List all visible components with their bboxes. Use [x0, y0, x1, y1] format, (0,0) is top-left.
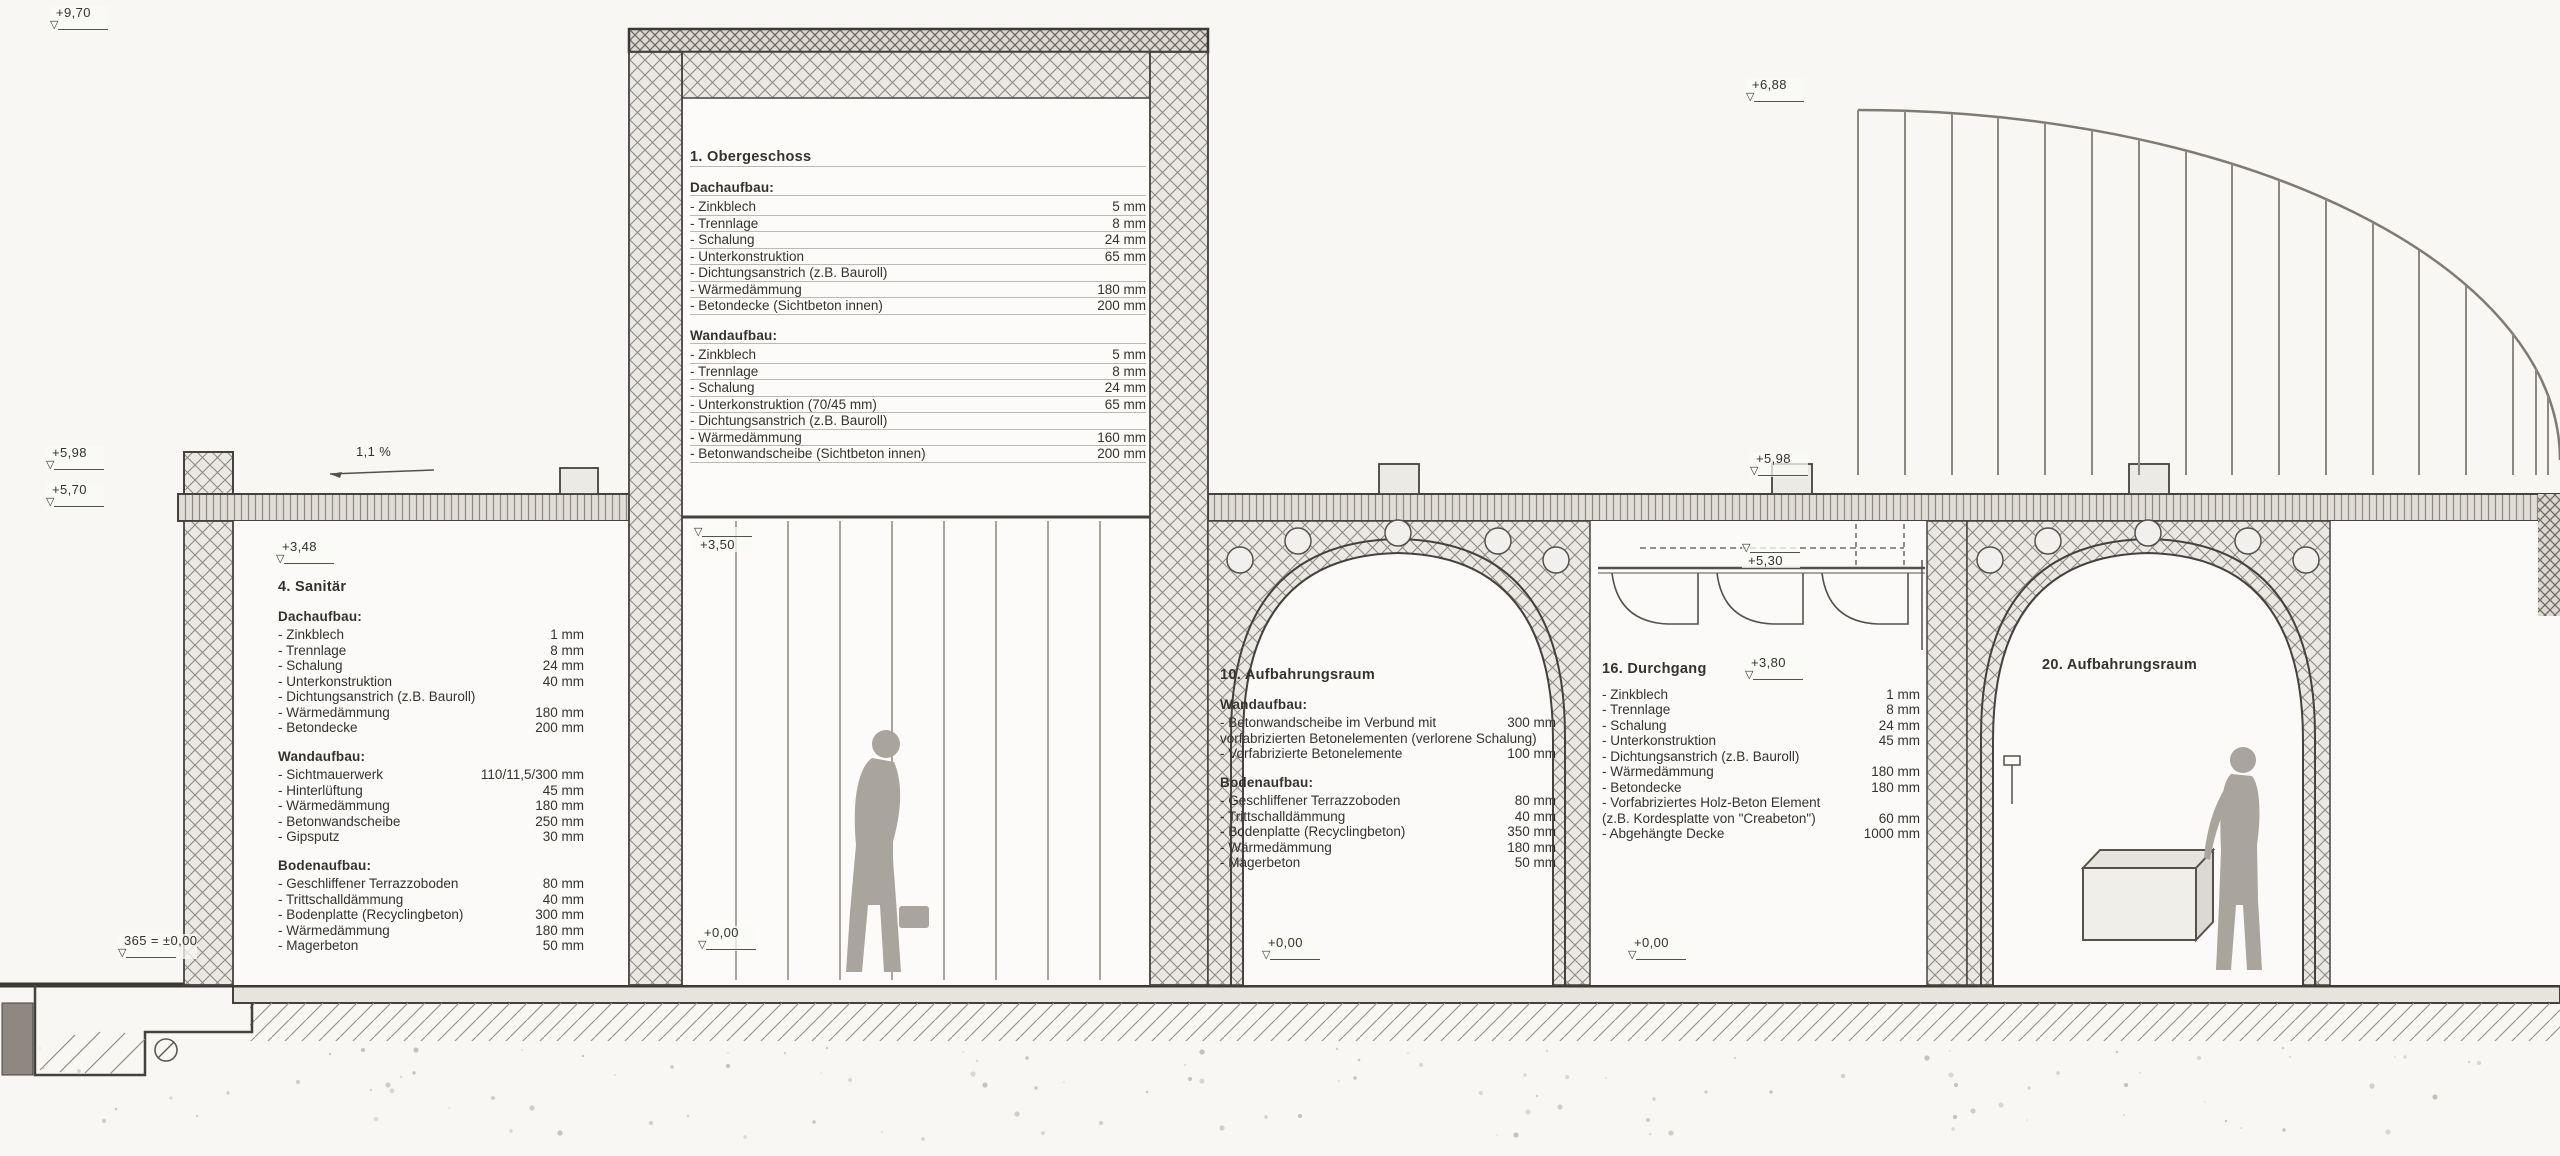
spec-row: - Dichtungsanstrich (z.B. Bauroll)	[1602, 749, 1920, 765]
spec-block-room4: 4. SanitärDachaufbau:- Zinkblech1 mm- Tr…	[278, 580, 584, 954]
spec-value: 24 mm	[1105, 380, 1146, 396]
spec-row: - Trittschalldämmung40 mm	[278, 892, 584, 908]
spec-value: 24 mm	[1879, 718, 1920, 734]
catafalque	[2083, 850, 2213, 940]
elevation-marker-top-left: +9,70 ▽	[50, 6, 108, 31]
spec-label: - Vorfabriziertes Holz-Beton Element	[1602, 795, 1830, 811]
spec-value: 5 mm	[1112, 347, 1146, 363]
spec-value: 50 mm	[1515, 855, 1556, 871]
spec-value: 40 mm	[1515, 809, 1556, 825]
spec-value: 8 mm	[1112, 216, 1146, 232]
spec-value: 110/11,5/300 mm	[481, 767, 584, 783]
elevation-marker-room16-lintel: +3,80 ▽	[1745, 656, 1803, 681]
spec-label: - Wärmedämmung	[278, 798, 400, 814]
spec-value: 80 mm	[543, 876, 584, 892]
spec-value: 65 mm	[1105, 397, 1146, 413]
spec-row: - Trennlage8 mm	[278, 643, 584, 659]
spec-label: (z.B. Kordesplatte von "Creabeton")	[1602, 811, 1826, 827]
spec-label: - Wärmedämmung	[278, 923, 400, 939]
spec-row: - Dichtungsanstrich (z.B. Bauroll)	[690, 413, 1146, 430]
spec-value: 65 mm	[1105, 249, 1146, 265]
elevation-marker-room10-floor: +0,00 ▽	[1262, 936, 1320, 961]
tower-ceiling-band	[682, 52, 1150, 98]
spec-title: 4. Sanitär	[278, 580, 584, 596]
spec-row: - Trennlage8 mm	[690, 364, 1146, 381]
spec-row: - Wärmedämmung180 mm	[278, 705, 584, 721]
level-triangle-icon: ▽	[1746, 92, 1754, 103]
spec-value: 1 mm	[1886, 687, 1920, 703]
spec-row: - Schalung24 mm	[1602, 718, 1920, 734]
spec-label: - Unterkonstruktion	[278, 674, 402, 690]
spec-label: - Bodenplatte (Recyclingbeton)	[1220, 824, 1415, 840]
edge-wall-sliver	[2538, 494, 2560, 616]
spec-label: - Betondecke (Sichtbeton innen)	[690, 298, 893, 314]
spec-label: - Unterkonstruktion	[690, 249, 814, 265]
spec-row: - Hinterlüftung45 mm	[278, 783, 584, 799]
spec-heading: Wandaufbau:	[690, 328, 1146, 345]
spec-value: 40 mm	[543, 674, 584, 690]
roof-slabs	[178, 452, 2560, 521]
spec-value: 80 mm	[1515, 793, 1556, 809]
spec-row: - Schalung24 mm	[690, 380, 1146, 397]
spec-value: 180 mm	[1871, 780, 1920, 796]
spec-label: - Trennlage	[690, 216, 768, 232]
tower-roof-slab	[629, 29, 1208, 52]
spec-heading: Bodenaufbau:	[278, 858, 584, 874]
spec-row: - Trittschalldämmung40 mm	[1220, 809, 1556, 825]
section-drawing-sheet: 1. ObergeschossDachaufbau:- Zinkblech5 m…	[0, 0, 2560, 1156]
spec-label: - Geschliffener Terrazzoboden	[1220, 793, 1410, 809]
level-triangle-icon: ▽	[1262, 950, 1270, 961]
spec-label: - Wärmedämmung	[1602, 764, 1724, 780]
elevation-marker-room16-floor: +0,00 ▽	[1628, 936, 1686, 961]
spec-row: - Vorfabriziertes Holz-Beton Element	[1602, 795, 1920, 811]
spec-value: 200 mm	[1097, 446, 1146, 462]
level-triangle-icon: ▽	[118, 948, 126, 959]
spec-row: - Magerbeton50 mm	[278, 938, 584, 954]
tower-left-wall	[629, 52, 682, 985]
level-triangle-icon: ▽	[46, 497, 54, 508]
spec-row: - Geschliffener Terrazzoboden80 mm	[278, 876, 584, 892]
edge-room-interior	[2330, 521, 2560, 985]
spec-label: - Gipsputz	[278, 829, 350, 845]
ground-speckle	[39, 1047, 2481, 1141]
room20-label: 20. Aufbahrungsraum	[2042, 658, 2302, 683]
spec-label: - Betondecke	[278, 720, 368, 736]
spec-value: 45 mm	[1879, 733, 1920, 749]
spec-label: - Magerbeton	[278, 938, 368, 954]
spec-label: - Vorfabrizierte Betonelemente	[1220, 746, 1412, 762]
spec-value: 50 mm	[543, 938, 584, 954]
level-triangle-icon: ▽	[1628, 950, 1636, 961]
spec-heading: Dachaufbau:	[278, 609, 584, 625]
spec-row: - Zinkblech1 mm	[1602, 687, 1920, 703]
spec-row: - Bodenplatte (Recyclingbeton)300 mm	[278, 907, 584, 923]
spec-label: vorfabrizierten Betonelementen (verloren…	[1220, 731, 1547, 747]
footing-block	[2, 1003, 33, 1075]
spec-label: - Wärmedämmung	[690, 282, 812, 298]
elevation-marker-tower-floor: +0,00 ▽	[698, 926, 756, 951]
spec-label: - Betonwandscheibe	[278, 814, 410, 830]
spec-block-obergeschoss: 1. ObergeschossDachaufbau:- Zinkblech5 m…	[690, 150, 1150, 463]
spec-value: 40 mm	[543, 892, 584, 908]
spec-label: - Dichtungsanstrich (z.B. Bauroll)	[1602, 749, 1809, 765]
spec-row: - Wärmedämmung160 mm	[690, 430, 1146, 447]
pier	[1927, 521, 1967, 985]
spec-label: - Dichtungsanstrich (z.B. Bauroll)	[690, 265, 897, 281]
spec-row: - Betonwandscheibe (Sichtbeton innen)200…	[690, 446, 1146, 463]
spec-label: - Bodenplatte (Recyclingbeton)	[278, 907, 473, 923]
spec-row: - Schalung24 mm	[690, 232, 1146, 249]
spec-value: 180 mm	[535, 798, 584, 814]
footing-step	[35, 985, 252, 1075]
spec-value: 200 mm	[535, 720, 584, 736]
spec-row: - Betonwandscheibe im Verbund mit300 mm	[1220, 715, 1556, 731]
spec-heading: Dachaufbau:	[690, 180, 1146, 197]
spec-label: - Dichtungsanstrich (z.B. Bauroll)	[278, 689, 485, 705]
spec-row: - Zinkblech5 mm	[690, 199, 1146, 216]
spec-label: - Wärmedämmung	[690, 430, 812, 446]
spec-label: - Betonwandscheibe (Sichtbeton innen)	[690, 446, 936, 462]
roof-upstand	[560, 468, 598, 494]
spec-row: - Abgehängte Decke1000 mm	[1602, 826, 1920, 842]
spec-value: 5 mm	[1112, 199, 1146, 215]
spec-row: - Trennlage8 mm	[1602, 702, 1920, 718]
spec-row: - Betondecke180 mm	[1602, 780, 1920, 796]
spec-value: 250 mm	[535, 814, 584, 830]
elevation-marker-right-ceiling: +5,30 ▽	[1742, 543, 1800, 568]
section-drawing	[0, 0, 2560, 1156]
elevation-marker-left-parapet: +5,98 ▽	[46, 446, 104, 471]
spec-label: - Trittschalldämmung	[278, 892, 413, 908]
spec-row: - Wärmedämmung180 mm	[1220, 840, 1556, 856]
elevation-marker-arc-top: +6,88 ▽	[1746, 78, 1804, 103]
spec-row: - Vorfabrizierte Betonelemente100 mm	[1220, 746, 1556, 762]
spec-row: - Wärmedämmung180 mm	[278, 923, 584, 939]
spec-title: 20. Aufbahrungsraum	[2042, 658, 2302, 674]
level-triangle-icon: ▽	[1750, 466, 1758, 477]
curved-roof-fan	[1858, 110, 2560, 475]
spec-label: - Sichtmauerwerk	[278, 767, 393, 783]
spec-label: - Zinkblech	[690, 347, 766, 363]
spec-block-room16: 16. Durchgang- Zinkblech1 mm- Trennlage8…	[1602, 662, 1920, 842]
spec-row: - Zinkblech1 mm	[278, 627, 584, 643]
spec-value: 180 mm	[1097, 282, 1146, 298]
spec-row: - Betondecke (Sichtbeton innen)200 mm	[690, 298, 1146, 315]
spec-row: - Wärmedämmung180 mm	[690, 282, 1146, 299]
spec-row: vorfabrizierten Betonelementen (verloren…	[1220, 731, 1556, 747]
spec-label: - Betondecke	[1602, 780, 1692, 796]
spec-row: (z.B. Kordesplatte von "Creabeton")60 mm	[1602, 811, 1920, 827]
spec-value: 180 mm	[1871, 764, 1920, 780]
spec-label: - Magerbeton	[1220, 855, 1310, 871]
spec-value: 8 mm	[550, 643, 584, 659]
skylight-upstand	[2129, 464, 2169, 494]
slope-arrow	[330, 470, 434, 478]
spec-row: - Wärmedämmung180 mm	[1602, 764, 1920, 780]
spec-label: - Trennlage	[278, 643, 356, 659]
spec-label: - Abgehängte Decke	[1602, 826, 1734, 842]
spec-label: - Hinterlüftung	[278, 783, 373, 799]
elevation-marker-left-roof: +5,70 ▽	[46, 483, 104, 508]
elevation-marker-datum: 365 = ±0,00 ▽	[118, 934, 197, 959]
spec-value: 180 mm	[535, 705, 584, 721]
spec-value: 24 mm	[543, 658, 584, 674]
spec-value: 1000 mm	[1864, 826, 1920, 842]
level-triangle-icon: ▽	[1745, 670, 1753, 681]
spec-label: - Trennlage	[1602, 702, 1680, 718]
spec-value: 100 mm	[1507, 746, 1556, 762]
spec-value: 1 mm	[550, 627, 584, 643]
spec-value: 45 mm	[543, 783, 584, 799]
spec-row: - Geschliffener Terrazzoboden80 mm	[1220, 793, 1556, 809]
spec-label: - Dichtungsanstrich (z.B. Bauroll)	[690, 413, 897, 429]
spec-value: 180 mm	[535, 923, 584, 939]
spec-value: 200 mm	[1097, 298, 1146, 314]
level-triangle-icon: ▽	[276, 554, 284, 565]
slope-label: 1,1 %	[356, 444, 391, 459]
spec-label: - Schalung	[1602, 718, 1677, 734]
spec-label: - Wärmedämmung	[278, 705, 400, 721]
spec-label: - Zinkblech	[690, 199, 766, 215]
spec-value: 60 mm	[1879, 811, 1920, 827]
level-triangle-icon: ▽	[46, 460, 54, 471]
spec-heading: Bodenaufbau:	[1220, 775, 1556, 791]
ground	[0, 985, 2560, 1141]
left-parapet	[184, 452, 233, 494]
elevation-marker-tower-mid: +3,50 ▽	[694, 527, 752, 552]
spec-row: - Unterkonstruktion40 mm	[278, 674, 584, 690]
spec-title: 1. Obergeschoss	[690, 150, 1146, 167]
spec-row: - Trennlage8 mm	[690, 216, 1146, 233]
spec-block-room10: 10. AufbahrungsraumWandaufbau:- Betonwan…	[1220, 668, 1556, 871]
tower-right-wall	[1150, 52, 1208, 985]
spec-title: 10. Aufbahrungsraum	[1220, 668, 1556, 684]
spec-heading: Wandaufbau:	[1220, 697, 1556, 713]
spec-value: 30 mm	[543, 829, 584, 845]
spec-label: - Geschliffener Terrazzoboden	[278, 876, 468, 892]
spec-label: - Schalung	[690, 380, 765, 396]
spec-row: - Betondecke200 mm	[278, 720, 584, 736]
spec-row: - Unterkonstruktion65 mm	[690, 249, 1146, 266]
spec-row: - Gipsputz30 mm	[278, 829, 584, 845]
spec-value: 8 mm	[1886, 702, 1920, 718]
spec-row: - Sichtmauerwerk110/11,5/300 mm	[278, 767, 584, 783]
elevation-marker-right-parapet: +5,98 ▽	[1750, 452, 1808, 477]
spec-label: - Trittschalldämmung	[1220, 809, 1355, 825]
spec-row: - Zinkblech5 mm	[690, 347, 1146, 364]
spec-row: - Wärmedämmung180 mm	[278, 798, 584, 814]
spec-row: - Betonwandscheibe250 mm	[278, 814, 584, 830]
spec-value: 24 mm	[1105, 232, 1146, 248]
spec-row: - Unterkonstruktion45 mm	[1602, 733, 1920, 749]
spec-label: - Unterkonstruktion	[1602, 733, 1726, 749]
level-triangle-icon: ▽	[50, 20, 58, 31]
spec-label: - Schalung	[278, 658, 353, 674]
spec-row: - Schalung24 mm	[278, 658, 584, 674]
spec-row: - Dichtungsanstrich (z.B. Bauroll)	[278, 689, 584, 705]
spec-row: - Magerbeton50 mm	[1220, 855, 1556, 871]
spec-value: 300 mm	[1507, 715, 1556, 731]
spec-label: - Wärmedämmung	[1220, 840, 1342, 856]
spec-value: 8 mm	[1112, 364, 1146, 380]
spec-value: 300 mm	[535, 907, 584, 923]
spec-heading: Wandaufbau:	[278, 749, 584, 765]
spec-value: 180 mm	[1507, 840, 1556, 856]
spec-label: - Zinkblech	[278, 627, 354, 643]
skylight-upstand	[1379, 464, 1419, 494]
spec-value: 350 mm	[1507, 824, 1556, 840]
level-triangle-icon: ▽	[698, 940, 706, 951]
spec-label: - Unterkonstruktion (70/45 mm)	[690, 397, 887, 413]
spec-value: 160 mm	[1097, 430, 1146, 446]
spec-label: - Betonwandscheibe im Verbund mit	[1220, 715, 1446, 731]
spec-row: - Dichtungsanstrich (z.B. Bauroll)	[690, 265, 1146, 282]
spec-label: - Schalung	[690, 232, 765, 248]
spec-label: - Zinkblech	[1602, 687, 1678, 703]
left-outer-wall	[184, 521, 233, 985]
spec-row: - Unterkonstruktion (70/45 mm)65 mm	[690, 397, 1146, 414]
elevation-marker-room4: +3,48 ▽	[276, 540, 334, 565]
spec-row: - Bodenplatte (Recyclingbeton)350 mm	[1220, 824, 1556, 840]
spec-label: - Trennlage	[690, 364, 768, 380]
